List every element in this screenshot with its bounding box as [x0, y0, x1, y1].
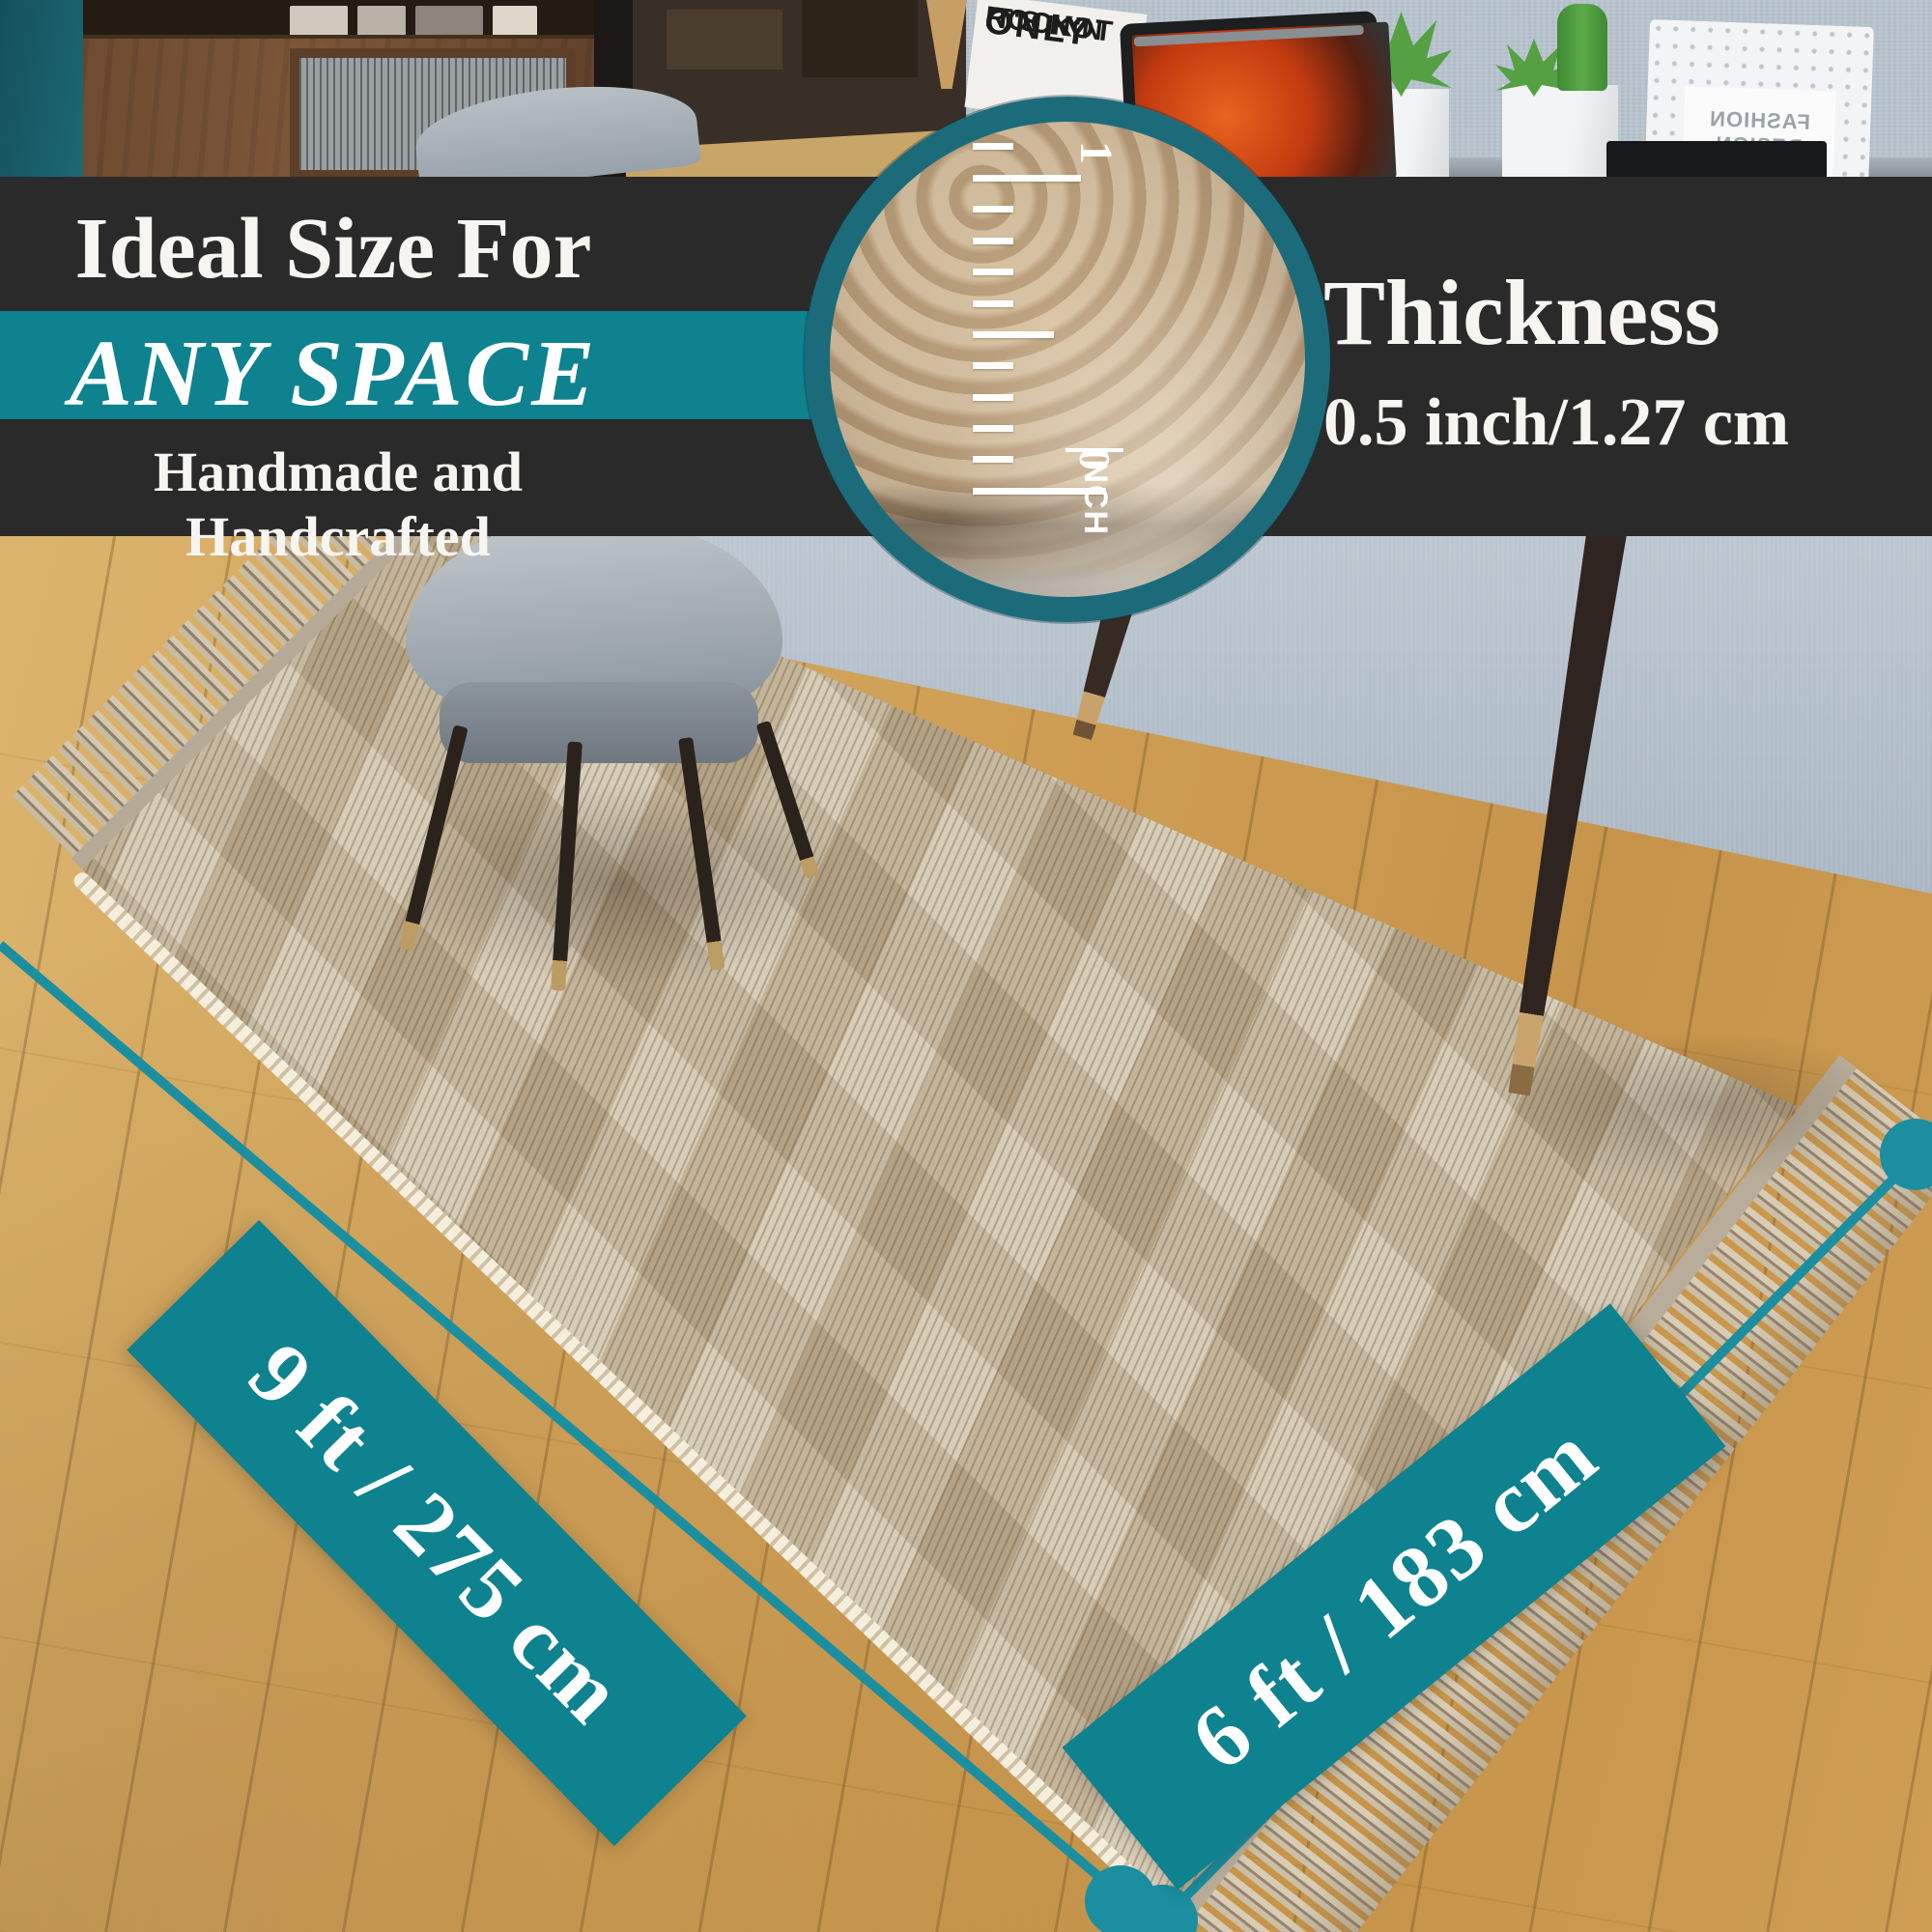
ruler-tick-inch: [973, 175, 1081, 182]
headline-line2: ANY SPACE: [0, 320, 667, 428]
cactus-plant: [1557, 4, 1607, 91]
ruler-tick: [973, 394, 1013, 401]
ruler-tick: [973, 300, 1013, 307]
headline-line1: Ideal Size For: [0, 199, 667, 298]
chair-seat: [440, 682, 758, 763]
ruler-one-text: 1: [1069, 141, 1122, 164]
ruler-tick: [973, 425, 1013, 432]
ruler-tick: [973, 456, 1013, 463]
ruler-tick: [973, 143, 1013, 150]
black-speaker-box: [1606, 141, 1827, 180]
desk-shadow: [1488, 1024, 1913, 1188]
ruler-unit-text: INCH: [1076, 448, 1114, 536]
ruler-tick: [973, 362, 1013, 369]
ruler-tick: [973, 238, 1013, 244]
ruler-label-zero-inch: 0 INCH: [1069, 448, 1121, 470]
ruler-tick-half: [973, 331, 1054, 338]
product-infographic: IT'S NOT ONLY ROCK'N FASHION DESIGN: [0, 0, 1932, 1932]
ruler-tick: [973, 269, 1013, 275]
ruler-label-one: 1: [1069, 141, 1122, 164]
thickness-value: 0.5 inch/1.27 cm: [1323, 384, 1922, 462]
ruler-tick: [973, 206, 1013, 213]
shelf-box: [802, 0, 918, 77]
headline-line3: Handmade and Handcrafted: [0, 440, 676, 569]
thickness-title: Thickness: [1323, 259, 1903, 366]
teal-wall: [0, 0, 93, 180]
plant-pot: [1502, 85, 1618, 179]
shelf-box: [667, 10, 782, 70]
